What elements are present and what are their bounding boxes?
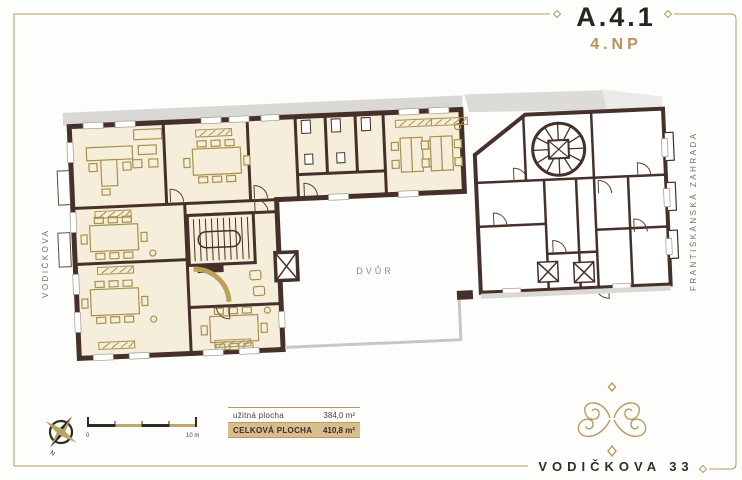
area-row-usable: užitná plocha 384,0 m² xyxy=(228,407,360,422)
area-value: 384,0 m² xyxy=(323,411,355,420)
armchair xyxy=(250,270,261,279)
shaft xyxy=(574,262,595,283)
area-row-total: CELKOVÁ PLOCHA 410,8 m² xyxy=(228,422,360,438)
courtyard-edge xyxy=(283,300,461,348)
courtyard-label: DVŮR xyxy=(330,266,420,276)
area-label: užitná plocha xyxy=(233,411,284,420)
scale-bar: 0 10 m xyxy=(82,414,212,442)
brand-name: VODIČKOVA 33 xyxy=(528,459,704,474)
brand-ornament-icon xyxy=(552,380,672,458)
area-value: 410,8 m² xyxy=(323,426,355,435)
elevator-courtyard xyxy=(275,252,298,281)
street-label: VODIČKOVA xyxy=(41,193,50,298)
facade-bay xyxy=(58,233,71,267)
plan-sheet: A.4.1 4.NP xyxy=(0,0,742,480)
north-label: N xyxy=(49,450,56,457)
stairwell xyxy=(187,213,255,266)
north-arrow-icon: N xyxy=(38,410,86,458)
shaft xyxy=(538,261,559,282)
spiral-staircase xyxy=(532,122,586,176)
armchair xyxy=(253,286,264,295)
area-table: užitná plocha 384,0 m² CELKOVÁ PLOCHA 41… xyxy=(228,407,360,438)
garden-label: FRANTIŠKÁNSKÁ ZAHRADA xyxy=(689,126,698,291)
scale-start: 0 xyxy=(86,433,90,439)
facade-bay xyxy=(57,171,70,205)
area-label: CELKOVÁ PLOCHA xyxy=(233,426,312,435)
wall-stub xyxy=(457,290,473,300)
scale-end: 10 m xyxy=(186,433,199,439)
